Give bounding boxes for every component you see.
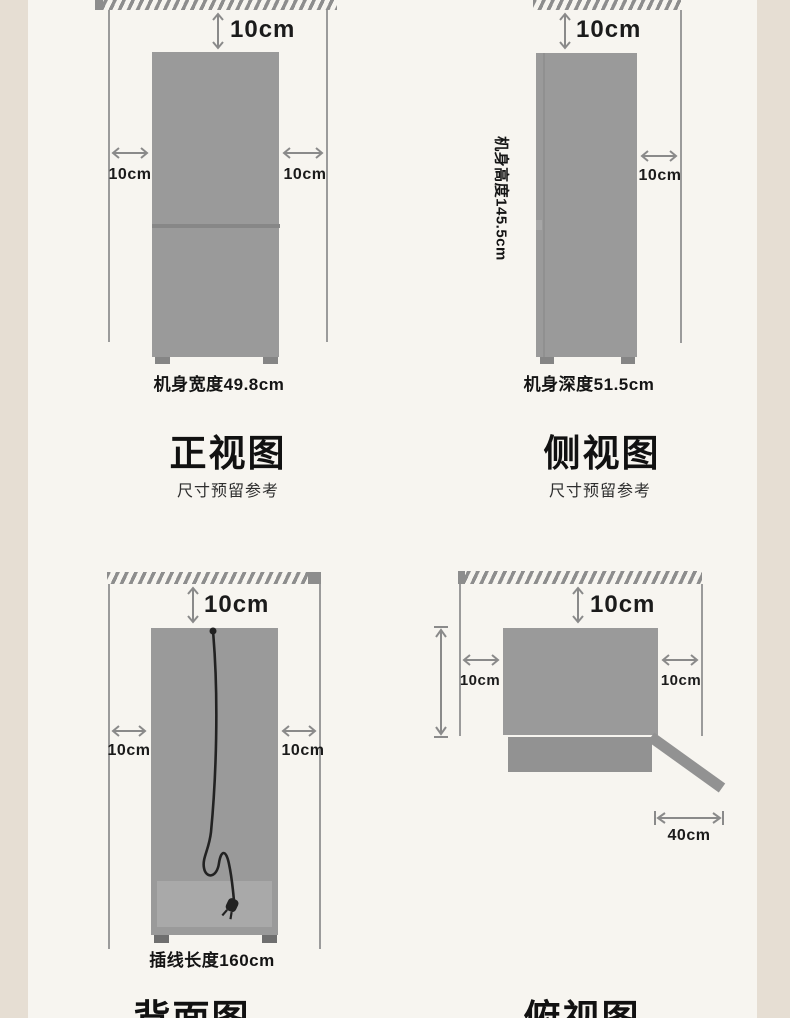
wall-line-right — [701, 584, 703, 736]
power-cord-icon — [190, 618, 300, 938]
panel-title-side: 侧视图 — [502, 423, 702, 477]
clearance-label-top: 10cm — [590, 591, 655, 619]
fridge-foot — [154, 935, 169, 943]
fridge-body-side — [536, 53, 637, 357]
door-front-edge-line — [543, 53, 545, 357]
clearance-arrow-right-icon — [281, 145, 325, 161]
left-margin-strip — [0, 0, 28, 1018]
panel-title-back: 背面图 — [92, 988, 292, 1018]
clearance-label-left: 10cm — [106, 166, 154, 184]
clearance-arrow-top-icon — [570, 585, 586, 625]
clearance-arrow-right-icon — [660, 652, 700, 668]
panel-subtitle-side: 尺寸预留参考 — [500, 477, 700, 501]
clearance-arrow-right-icon — [280, 723, 318, 739]
clearance-label-right: 10cm — [279, 742, 327, 760]
dimension-diagram-page: 10cm 10cm 10cm 机身宽度49.8cm 正视图 尺寸预留参考 10c… — [0, 0, 790, 1018]
fridge-foot — [621, 357, 635, 364]
clearance-label-top: 10cm — [230, 16, 295, 44]
wall-line-right — [319, 584, 321, 949]
clearance-arrow-top-icon — [557, 11, 573, 51]
clearance-arrow-top-icon — [210, 11, 226, 51]
clearance-label-right: 10cm — [281, 166, 329, 184]
wall-hatch-cap — [458, 571, 465, 584]
clearance-label-right: 10cm — [657, 672, 705, 689]
door-swing-label: 40cm — [654, 827, 724, 845]
clearance-arrow-left-icon — [110, 723, 148, 739]
fridge-foot — [540, 357, 554, 364]
fridge-door-open-icon — [640, 728, 740, 800]
clearance-label-top: 10cm — [576, 16, 641, 44]
ceiling-hatch-cap — [308, 572, 321, 584]
door-divider-line — [152, 224, 280, 228]
fridge-door-closed — [508, 737, 652, 772]
fridge-body-top — [503, 628, 658, 735]
wall-hatch — [458, 571, 702, 584]
width-dimension-label: 机身宽度49.8cm — [119, 370, 319, 395]
clearance-label-top: 10cm — [204, 591, 269, 619]
cord-length-label: 插线长度160cm — [112, 946, 312, 971]
door-swing-arrow-icon — [654, 810, 724, 826]
door-handle-notch — [536, 220, 542, 230]
ceiling-hatch — [107, 572, 321, 584]
depth-extent-arrow-icon — [433, 626, 449, 738]
clearance-label-right: 10cm — [636, 167, 684, 185]
right-margin-strip — [757, 0, 790, 1018]
fridge-body-front — [152, 52, 279, 357]
panel-subtitle-front: 尺寸预留参考 — [128, 477, 328, 501]
panel-title-front: 正视图 — [128, 423, 328, 477]
clearance-label-left: 10cm — [456, 672, 504, 689]
depth-dimension-label: 机身深度51.5cm — [489, 370, 689, 395]
clearance-arrow-left-icon — [110, 145, 150, 161]
fridge-foot — [263, 357, 278, 364]
panel-title-top: 俯视图 — [482, 988, 682, 1018]
ceiling-hatch — [533, 0, 681, 10]
clearance-arrow-left-icon — [461, 652, 501, 668]
ceiling-hatch-cap — [95, 0, 103, 10]
clearance-arrow-right-icon — [639, 148, 679, 164]
clearance-label-left: 10cm — [105, 742, 153, 760]
height-dimension-label: 机身高度145.5cm — [492, 119, 513, 279]
ceiling-hatch — [95, 0, 337, 10]
wall-line-left — [108, 584, 110, 949]
fridge-foot — [155, 357, 170, 364]
